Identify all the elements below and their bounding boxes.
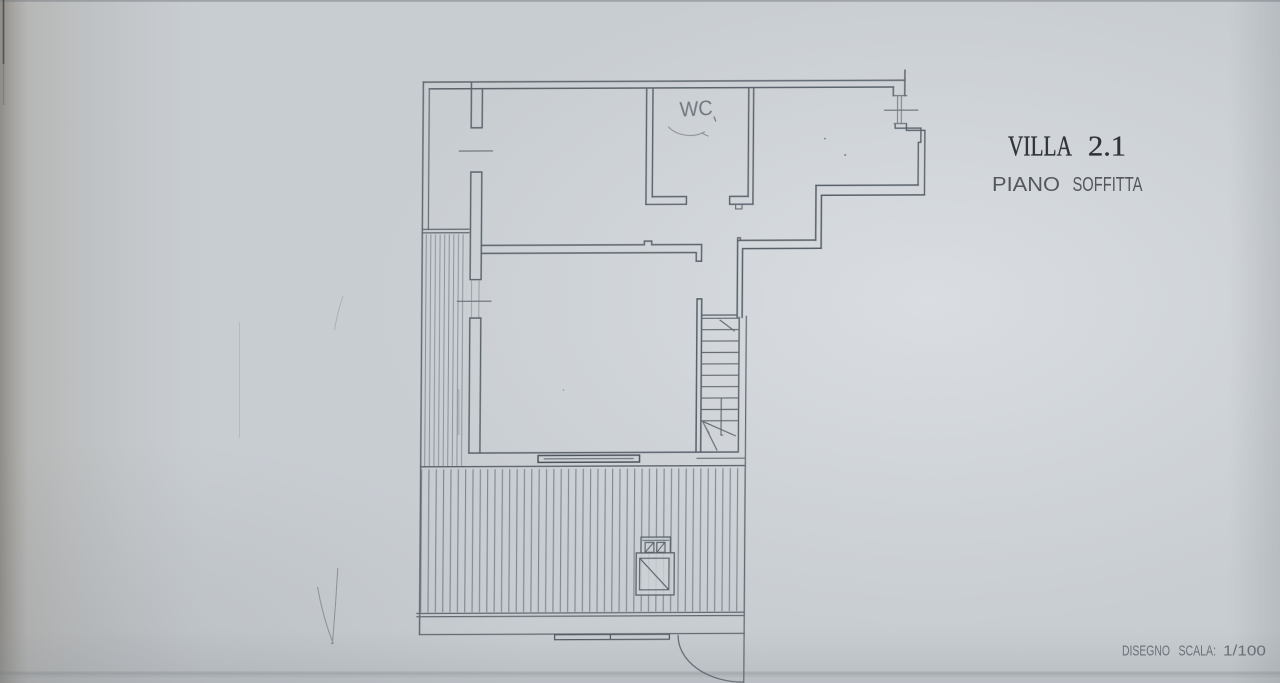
svg-text:VILLA2.1: VILLA2.1 xyxy=(1008,131,1126,163)
svg-text:WC: WC xyxy=(679,97,713,122)
svg-text:DISEGNOSCALA:1/100: DISEGNOSCALA:1/100 xyxy=(1122,643,1266,660)
